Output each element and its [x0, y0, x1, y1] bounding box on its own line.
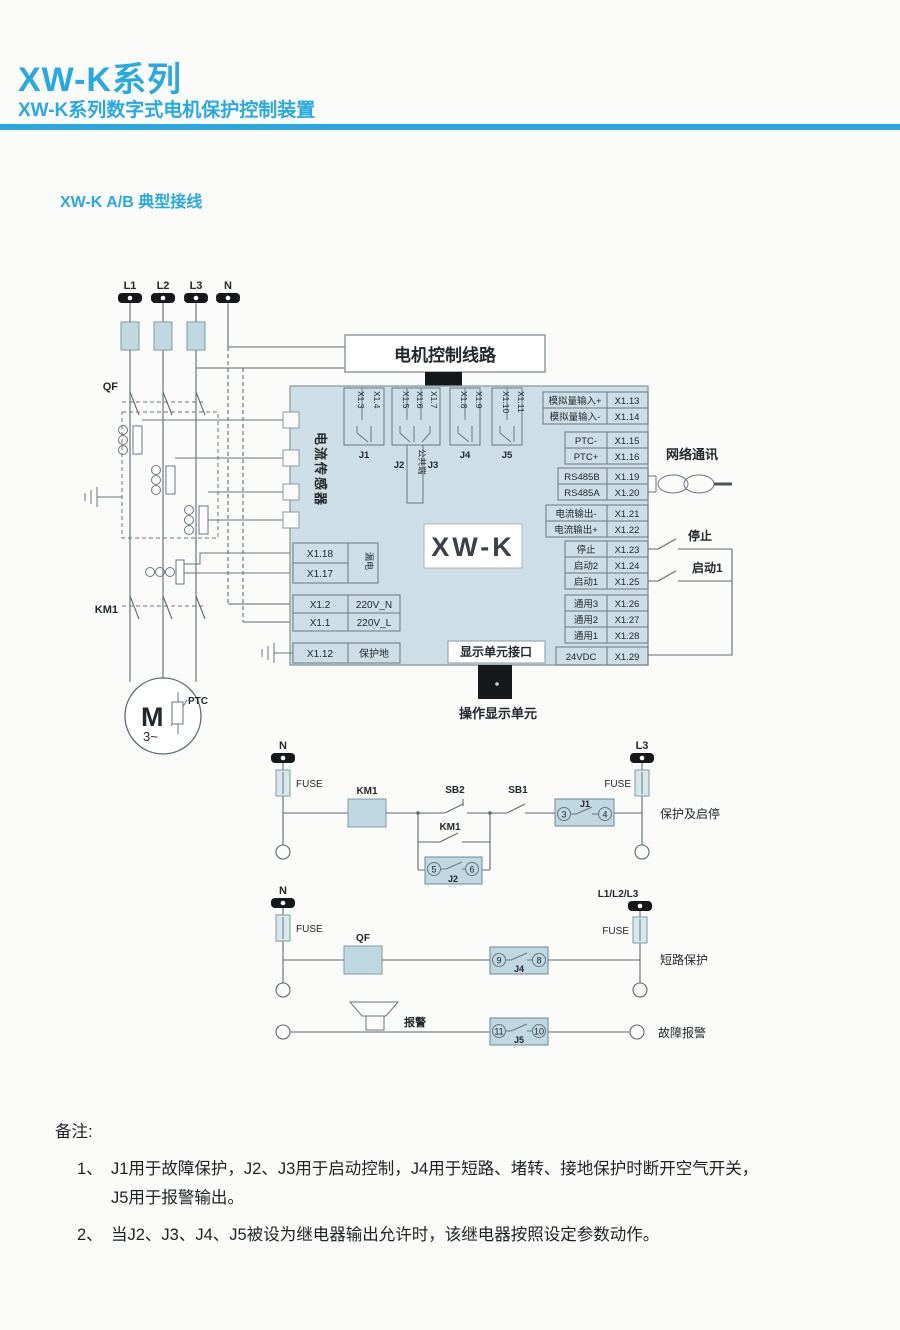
c2-j4-label: J4: [514, 964, 524, 974]
c1-fuse-right-label: FUSE: [604, 779, 631, 790]
page-title: XW-K系列: [18, 52, 182, 101]
network-label: 网络通讯: [666, 447, 718, 462]
page-subtitle: XW-K系列数字式电机保护控制装置: [18, 95, 315, 122]
device-nameplate: XW-K: [424, 524, 522, 568]
display-connector: [478, 665, 512, 699]
current-sensor-label: 电流传感器: [313, 432, 328, 507]
c1-fuse-left-label: FUSE: [296, 779, 323, 790]
pin-x1-10: X1.10: [501, 391, 511, 413]
terminal-label-l3: L3: [190, 280, 203, 292]
pin-x1-16: X1.16: [615, 452, 640, 463]
pin-x1-18: X1.18: [307, 549, 334, 560]
line-fuses: [121, 322, 205, 350]
label-220v-l: 220V_L: [357, 618, 392, 629]
c1-j1-label: J1: [580, 799, 590, 809]
pin-x1-1: X1.1: [310, 618, 331, 629]
iout-minus-label: 电流输出-: [555, 508, 596, 520]
display-unit: 操作显示单元: [459, 665, 537, 721]
iout-plus-label: 电流输出+: [554, 524, 598, 536]
c3-j5-t1: 11: [494, 1027, 503, 1037]
ptc-plus-label: PTC+: [574, 452, 599, 463]
supply-terminals: L1 L2 L3 N: [118, 280, 240, 303]
note-2-number: 2、: [77, 1221, 111, 1250]
c3-j5-t2: 10: [534, 1027, 544, 1037]
terminal-label-l1: L1: [124, 280, 137, 292]
pin-x1-24: X1.24: [615, 561, 640, 572]
pin-x1-29: X1.29: [615, 652, 640, 663]
motor: M 3~ PTC: [125, 678, 208, 754]
leakage-label: 漏电: [364, 552, 375, 570]
control-circuit-1: N FUSE KM1 SB2 KM1 5 6 J2 SB1 J1 3 4: [271, 740, 720, 884]
rs485a-label: RS485A: [564, 488, 600, 499]
pin-x1-7: X1.7: [429, 391, 439, 409]
pin-x1-21: X1.21: [615, 509, 640, 520]
qf-label: QF: [103, 381, 119, 393]
j3-label: J3: [428, 460, 439, 471]
motor-phase: 3~: [143, 729, 158, 744]
notes: 备注: 1、 J1用于故障保护，J2、J3用于启动控制，J4用于短路、堵转、接地…: [55, 1118, 865, 1250]
note-item-1: 1、 J1用于故障保护，J2、J3用于启动控制，J4用于短路、堵转、接地保护时断…: [55, 1155, 865, 1213]
leakage-ct: [146, 553, 294, 584]
pin-x1-6: X1.6: [415, 391, 425, 409]
c2-j4-t1: 9: [496, 956, 501, 966]
note-item-2: 2、 当J2、J3、J4、J5被设为继电器输出允许时，该继电器按照设定参数动作。: [55, 1221, 865, 1250]
c1-km1-label: KM1: [356, 786, 378, 797]
stop-start-switches: 停止 启动1: [648, 528, 732, 655]
control-circuit-2: N FUSE QF 9 8 J4 L1/L2/L3 FUSE 短路保护: [271, 885, 708, 997]
notes-heading: 备注:: [55, 1118, 865, 1147]
note-1-line2: J5用于报警输出。: [111, 1189, 244, 1207]
c2-qf-label: QF: [356, 933, 370, 944]
c1-sb1-contact: [490, 804, 555, 813]
ptc-group: PTC- X1.15 PTC+ X1.16: [565, 432, 648, 464]
c1-sb1-label: SB1: [508, 785, 528, 796]
pin-x1-4: X1.4: [372, 391, 382, 409]
j2-label: J2: [394, 460, 405, 471]
j5-label: J5: [502, 450, 513, 461]
pin-x1-26: X1.26: [615, 599, 640, 610]
device-xwk: X1.3 X1.4 J1 X1.5 X1.6 X1.7 公共端 J2 J3 X1…: [262, 386, 648, 665]
note-1-line1: J1用于故障保护，J2、J3用于启动控制，J4用于短路、堵转、接地保护时断开空气…: [111, 1160, 758, 1178]
pin-x1-22: X1.22: [615, 525, 640, 536]
pin-x1-11: X1.11: [516, 391, 526, 413]
display-unit-label: 操作显示单元: [459, 706, 537, 721]
c1-km1-aux-label: KM1: [439, 822, 461, 833]
motor-control-box: 电机控制线路: [345, 335, 545, 386]
rs485b-label: RS485B: [564, 472, 599, 483]
pe-label: 保护地: [359, 647, 389, 660]
c1-j2-label: J2: [448, 874, 458, 884]
c1-j2-t1: 5: [431, 865, 436, 875]
c1-caption: 保护及启停: [660, 806, 720, 821]
display-interface-label: 显示单元接口: [460, 644, 532, 659]
gen2-label: 通用2: [574, 615, 598, 626]
section-title: XW-K A/B 典型接线: [60, 188, 202, 212]
c2-n-label: N: [279, 885, 287, 897]
c1-j1-t2: 4: [602, 810, 607, 820]
pin-x1-19: X1.19: [615, 472, 640, 483]
current-transformers: [85, 412, 283, 538]
breaker-qf: QF: [103, 381, 206, 415]
wiring-diagram: L1 L2 L3 N QF: [0, 250, 900, 1080]
pin-x1-8: X1.8: [459, 391, 469, 409]
pin-x1-23: X1.23: [615, 545, 640, 556]
pin-x1-3: X1.3: [356, 391, 366, 409]
stop-row-label: 停止: [576, 544, 596, 556]
start1-row-label: 启动1: [574, 576, 598, 588]
stop-switch-label: 停止: [688, 528, 712, 543]
c1-km1-aux-contact: [418, 833, 490, 842]
note-1-text: J1用于故障保护，J2、J3用于启动控制，J4用于短路、堵转、接地保护时断开空气…: [111, 1155, 758, 1213]
note-1-number: 1、: [77, 1155, 111, 1213]
c1-j1-t1: 3: [561, 810, 566, 820]
vdc-label: 24VDC: [566, 652, 597, 663]
c2-phases-label: L1/L2/L3: [598, 889, 639, 900]
motor-letter: M: [141, 702, 164, 732]
c2-j4-t2: 8: [536, 956, 541, 966]
pe-ground-symbol: [262, 643, 293, 663]
device-name: XW-K: [431, 532, 514, 562]
c2-qf-coil: [344, 946, 382, 974]
c1-sb2-contact: [445, 799, 507, 813]
c1-j2-t2: 6: [469, 865, 474, 875]
c3-j5-label: J5: [514, 1035, 524, 1045]
pin-x1-28: X1.28: [615, 631, 640, 642]
general-io-group: 通用3 X1.26 通用2 X1.27 通用1 X1.28: [565, 595, 648, 643]
motor-control-box-label: 电机控制线路: [394, 345, 497, 365]
pin-x1-5: X1.5: [401, 391, 411, 409]
contactor-km1: KM1: [95, 596, 206, 619]
top-connector: [425, 372, 462, 386]
pin-x1-15: X1.15: [615, 436, 640, 447]
c2-fuse-right-label: FUSE: [602, 926, 629, 937]
terminal-label-l2: L2: [157, 280, 170, 292]
c1-l3-label: L3: [636, 740, 649, 752]
c1-sb2-label: SB2: [445, 785, 465, 796]
c3-alarm-label: 报警: [404, 1015, 426, 1029]
common-terminal-label: 公共端: [417, 449, 427, 475]
c2-caption: 短路保护: [660, 952, 708, 967]
pin-x1-9: X1.9: [474, 391, 484, 409]
header-rule: [0, 124, 900, 130]
c3-caption: 故障报警: [658, 1025, 706, 1040]
ptc-label: PTC: [188, 696, 208, 707]
display-interface: 显示单元接口: [448, 641, 545, 663]
pin-x1-27: X1.27: [615, 615, 640, 626]
start2-row-label: 启动2: [574, 560, 598, 572]
j1-label: J1: [359, 450, 370, 461]
terminal-label-n: N: [224, 280, 232, 292]
start-stop-group: 停止 X1.23 启动2 X1.24 启动1 X1.25: [565, 541, 648, 589]
c1-n-label: N: [279, 740, 287, 752]
pin-x1-13: X1.13: [615, 396, 640, 407]
pin-x1-2: X1.2: [310, 600, 331, 611]
analog-input-group: 模拟量输入+ X1.13 模拟量输入- X1.14: [543, 392, 648, 424]
network-comm: 网络通讯: [648, 447, 732, 493]
pin-x1-14: X1.14: [615, 412, 640, 423]
ground-symbol-left: [85, 487, 122, 507]
pin-x1-25: X1.25: [615, 577, 640, 588]
start-switch-label: 启动1: [692, 560, 723, 575]
j4-label: J4: [460, 450, 471, 461]
analog-minus-label: 模拟量输入-: [550, 411, 601, 423]
gen3-label: 通用3: [574, 599, 598, 610]
control-circuit-3: 报警 11 10 J5 故障报警: [276, 1002, 706, 1045]
analog-plus-label: 模拟量输入+: [548, 395, 602, 407]
km1-label: KM1: [95, 604, 118, 616]
alarm-speaker: [350, 1002, 398, 1030]
pin-x1-20: X1.20: [615, 488, 640, 499]
c1-km1-coil: [348, 799, 386, 827]
pin-x1-12: X1.12: [307, 649, 334, 660]
note-2-text: 当J2、J3、J4、J5被设为继电器输出允许时，该继电器按照设定参数动作。: [111, 1221, 659, 1250]
ptc-minus-label: PTC-: [575, 436, 597, 447]
gen1-label: 通用1: [574, 631, 598, 642]
pin-x1-17: X1.17: [307, 569, 334, 580]
terminal-symbols: [118, 293, 240, 303]
label-220v-n: 220V_N: [356, 600, 392, 611]
c2-fuse-left-label: FUSE: [296, 924, 323, 935]
